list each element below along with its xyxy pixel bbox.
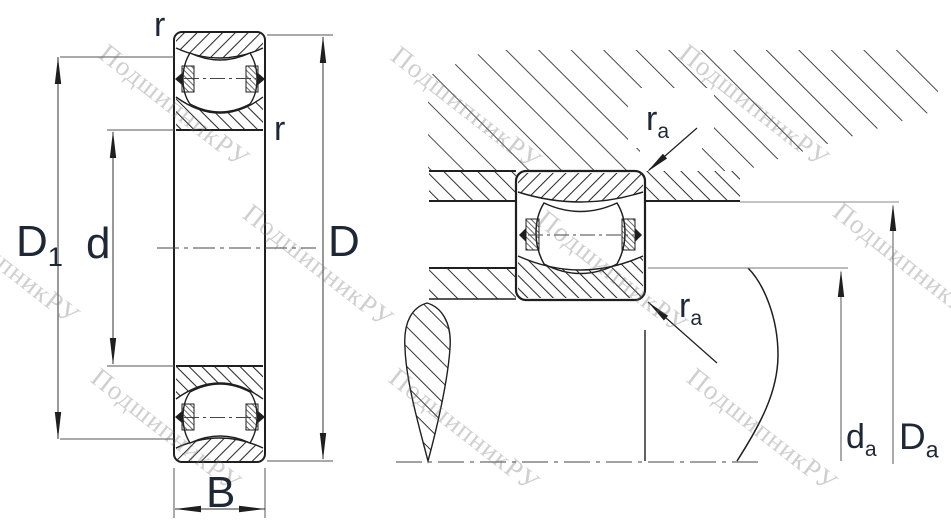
housing-shoulder-right <box>646 171 740 201</box>
label-ra-top: ra <box>646 102 669 142</box>
arrow-down-icon <box>320 433 326 460</box>
label-da-sub: a <box>865 438 877 461</box>
label-Da: Da <box>899 418 939 461</box>
left-view-bearing-section <box>157 32 316 462</box>
label-D: D <box>328 220 360 264</box>
arrow-up-icon <box>838 270 844 297</box>
mounted-barrel-roller <box>536 203 625 274</box>
label-Da-sub: a <box>926 436 939 462</box>
label-Da-main: D <box>899 416 926 457</box>
label-da-main: d <box>846 418 865 456</box>
label-D1: D1 <box>16 220 63 270</box>
housing-shoulder-left <box>429 171 516 201</box>
arrow-left-icon <box>175 506 201 512</box>
label-D1-sub: 1 <box>48 241 63 272</box>
shaft-broken-section <box>405 303 450 461</box>
bearing-drawing-canvas: ПодшипникРУ ПодшипникРУ ПодшипникРУ Подш… <box>0 0 951 532</box>
label-r-inner: r <box>274 112 285 146</box>
drawing-geometry <box>0 0 951 532</box>
label-ra-bottom: ra <box>679 289 702 329</box>
arrow-right-icon <box>239 506 265 512</box>
label-da: da <box>846 420 877 460</box>
label-ra-bottom-main: r <box>679 287 690 325</box>
shaft-shoulder-hatch <box>429 268 516 299</box>
label-ra-top-main: r <box>646 100 657 138</box>
arrow-up-icon <box>890 204 896 231</box>
label-ra-bottom-sub: a <box>690 307 702 330</box>
label-d: d <box>86 222 110 266</box>
arrow-up-icon <box>110 131 116 158</box>
label-D1-main: D <box>16 217 48 266</box>
label-ra-top-sub: a <box>657 120 669 143</box>
label-r-top: r <box>154 8 165 42</box>
arrow-up-icon <box>55 57 61 84</box>
shaft-contour-curve <box>737 268 778 461</box>
label-B: B <box>206 471 235 515</box>
arrow-up-icon <box>320 36 326 63</box>
arrow-down-icon <box>110 338 116 365</box>
arrow-leader-icon <box>648 302 668 321</box>
arrow-down-icon <box>55 412 61 439</box>
